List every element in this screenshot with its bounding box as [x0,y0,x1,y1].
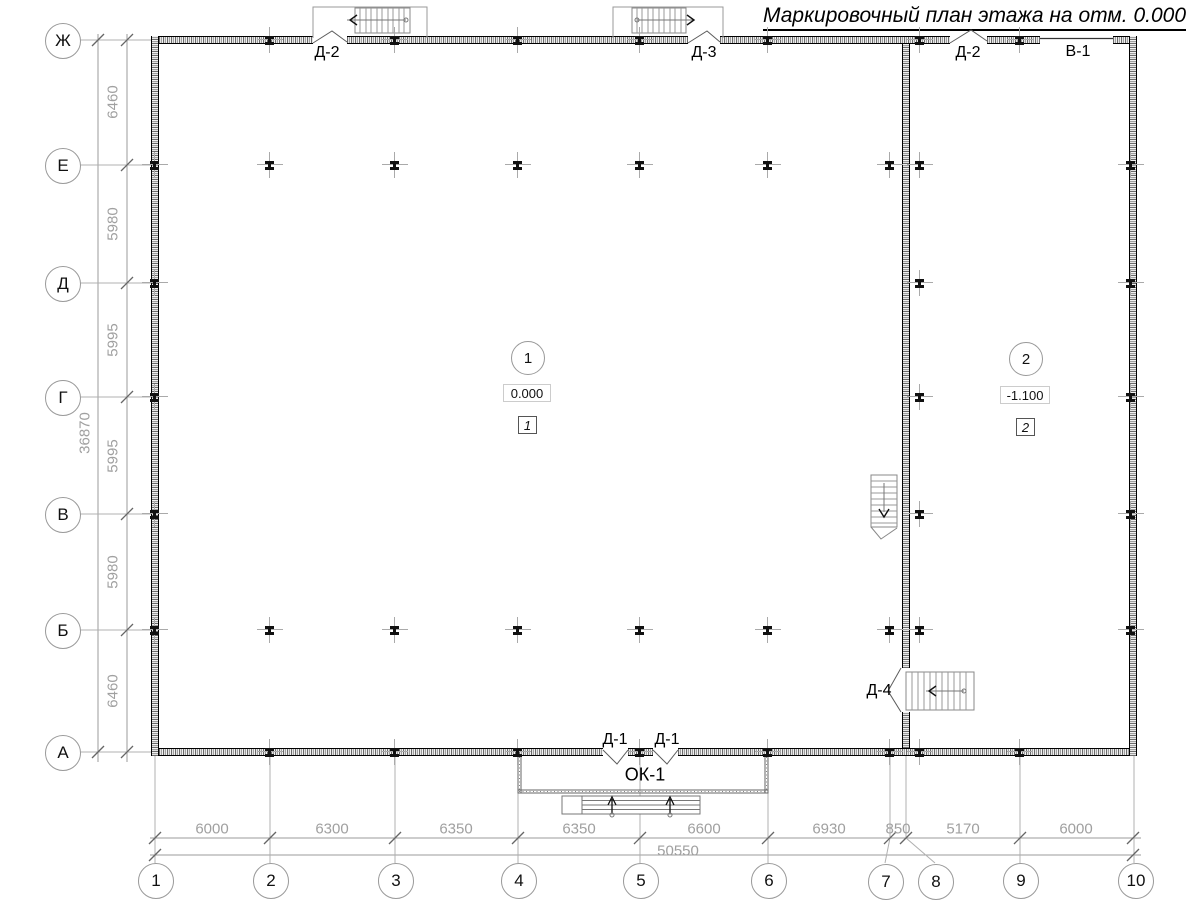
axis-row-label: Д [57,274,69,294]
axis-row-bubble: Д [45,266,81,302]
door-label: Д-2 [955,44,980,62]
axis-row-label: В [57,505,68,525]
room-number-bubble: 1 [511,341,545,375]
column-marker [755,739,781,765]
axis-row-label: Ж [55,31,71,51]
gate-label: В-1 [1066,43,1091,61]
dim-bottom-segment: 850 [885,821,910,838]
column-marker [1118,270,1144,296]
column-marker [907,384,933,410]
column-marker [627,152,653,178]
axis-row-bubble: Е [45,148,81,184]
stair-near-row-v [871,475,897,539]
room-number: 1 [524,350,532,367]
column-marker [257,152,283,178]
dim-left-segment: 6460 [105,85,122,118]
door-label: Д-1 [654,731,679,749]
room-number-bubble: 2 [1009,342,1043,376]
dim-left-total: 36870 [77,412,94,454]
column-marker [907,617,933,643]
column-marker [1118,152,1144,178]
axis-col-label: 2 [266,871,275,891]
column-marker [142,501,168,527]
axis-col-label: 9 [1016,871,1025,891]
column-marker [1118,617,1144,643]
axis-col-bubble: 9 [1003,863,1039,899]
axis-col-label: 3 [391,871,400,891]
axis-col-label: 10 [1127,871,1146,891]
room-type-mark: 1 [518,416,537,434]
column-marker [877,739,903,765]
axis-col-label: 4 [514,871,523,891]
column-marker [142,384,168,410]
stair-vestibule-left [313,7,427,38]
column-marker [257,617,283,643]
axis-row-bubble: А [45,735,81,771]
column-marker [505,27,531,53]
dim-bottom-segment: 6300 [315,821,348,838]
floor-plan: Маркировочный план этажа на отм. 0.000 Ж… [0,0,1200,900]
axis-col-bubble: 6 [751,863,787,899]
column-marker [257,27,283,53]
axis-col-label: 5 [636,871,645,891]
column-marker [907,739,933,765]
column-marker [142,270,168,296]
door-label: Д-3 [691,44,716,62]
column-marker [907,501,933,527]
column-marker [877,617,903,643]
dim-bottom-segment: 6350 [439,821,472,838]
dim-bottom-segment: 6000 [1059,821,1092,838]
axis-col-bubble: 1 [138,863,174,899]
entrance-steps [562,796,700,817]
column-marker [1007,739,1033,765]
axis-col-bubble: 7 [868,864,904,900]
dim-bottom-total: 50550 [657,843,699,860]
column-marker [907,270,933,296]
column-marker [627,739,653,765]
column-marker [907,27,933,53]
room-elevation: 0.000 [503,384,551,402]
axis-col-label: 8 [931,872,940,892]
stair-at-d4 [906,672,974,710]
axis-row-label: Г [58,388,67,408]
column-marker [755,152,781,178]
column-marker [505,617,531,643]
room-elevation: -1.100 [1000,386,1050,404]
column-marker [382,27,408,53]
axis-row-bubble: Б [45,613,81,649]
dim-left-segment: 6460 [105,674,122,707]
door-swing-symbols [313,30,987,764]
column-marker [877,152,903,178]
porch-label: ОК-1 [625,765,666,786]
column-marker [755,617,781,643]
door-label: Д-4 [866,682,891,700]
dim-bottom-segment: 6000 [195,821,228,838]
axis-col-bubble: 10 [1118,863,1154,899]
axis-row-label: Е [57,156,68,176]
axis-row-label: А [57,743,68,763]
axis-row-bubble: Ж [45,23,81,59]
axis-col-bubble: 8 [918,864,954,900]
axis-col-label: 7 [881,872,890,892]
column-marker [627,617,653,643]
column-marker [382,617,408,643]
column-marker [755,27,781,53]
column-marker [382,739,408,765]
column-marker [1118,384,1144,410]
column-marker [1007,27,1033,53]
door-label: Д-1 [602,731,627,749]
axis-row-label: Б [57,621,68,641]
column-marker [142,152,168,178]
column-marker [505,152,531,178]
axis-col-bubble: 3 [378,863,414,899]
axis-col-label: 1 [151,871,160,891]
axis-row-bubble: В [45,497,81,533]
dim-bottom-segment: 6600 [687,821,720,838]
room-type-mark: 2 [1016,418,1035,436]
door-label: Д-2 [314,44,339,62]
dim-left-segment: 5995 [105,323,122,356]
column-marker [627,27,653,53]
dim-left-segment: 5980 [105,207,122,240]
column-marker [1118,501,1144,527]
axis-col-bubble: 5 [623,863,659,899]
column-marker [907,152,933,178]
column-marker [257,739,283,765]
axis-col-label: 6 [764,871,773,891]
plan-linework [0,0,1200,900]
column-marker [505,739,531,765]
dim-left-segment: 5980 [105,555,122,588]
dim-bottom-segment: 6350 [562,821,595,838]
dim-bottom-segment: 6930 [812,821,845,838]
column-marker [142,617,168,643]
room-number: 2 [1022,351,1030,368]
axis-col-bubble: 2 [253,863,289,899]
dim-bottom-segment: 5170 [946,821,979,838]
column-marker [382,152,408,178]
axis-col-bubble: 4 [501,863,537,899]
axis-row-bubble: Г [45,380,81,416]
dim-left-segment: 5995 [105,439,122,472]
